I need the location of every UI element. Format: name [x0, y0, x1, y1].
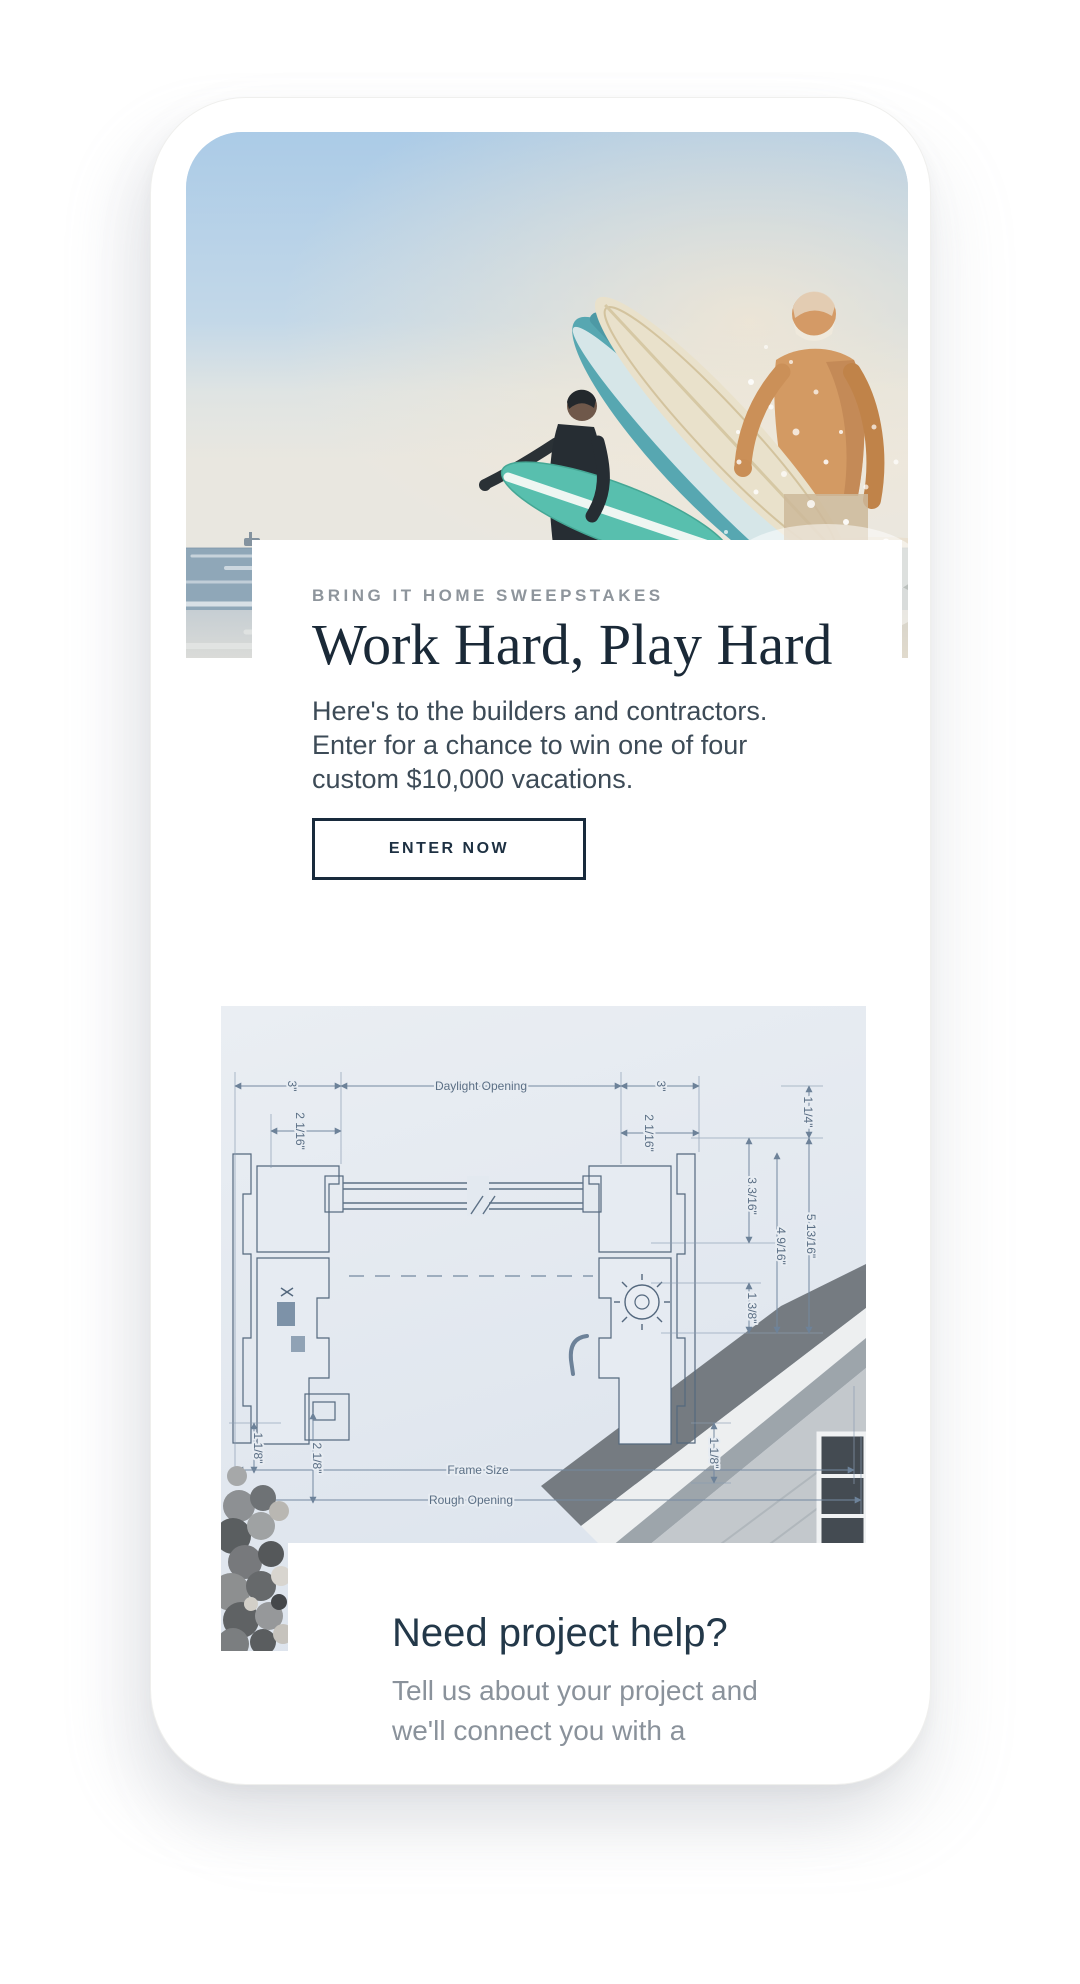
svg-text:2 1/16": 2 1/16"	[293, 1112, 307, 1150]
svg-text:Rough Opening: Rough Opening	[429, 1493, 513, 1507]
svg-text:3": 3"	[285, 1081, 299, 1092]
svg-text:1 3/8": 1 3/8"	[745, 1293, 759, 1324]
help-card: Need project help? Tell us about your pr…	[288, 1543, 908, 1750]
sweepstakes-card: BRING IT HOME SWEEPSTAKES Work Hard, Pla…	[252, 540, 902, 676]
sweepstakes-title: Work Hard, Play Hard	[312, 614, 902, 676]
svg-text:5 13/16": 5 13/16"	[804, 1214, 818, 1258]
sweepstakes-eyebrow: BRING IT HOME SWEEPSTAKES	[312, 586, 902, 606]
svg-text:4 9/16": 4 9/16"	[774, 1227, 788, 1265]
svg-text:Daylight Opening: Daylight Opening	[435, 1079, 527, 1093]
svg-text:2 1/16": 2 1/16"	[642, 1114, 656, 1152]
help-body-line: we'll connect you with a	[392, 1711, 908, 1750]
phone-screen: BRING IT HOME SWEEPSTAKES Work Hard, Pla…	[186, 132, 908, 1750]
sweepstakes-body: Here's to the builders and contractors. …	[312, 694, 832, 796]
svg-text:1 1/4": 1 1/4"	[801, 1097, 815, 1128]
help-body: Tell us about your project and we'll con…	[392, 1671, 908, 1750]
body-line: custom $10,000 vacations.	[312, 762, 832, 796]
svg-text:3 3/16": 3 3/16"	[745, 1177, 759, 1215]
enter-now-button[interactable]: ENTER NOW	[312, 818, 586, 880]
svg-text:1 1/8": 1 1/8"	[251, 1433, 265, 1464]
svg-text:Frame Size: Frame Size	[447, 1463, 509, 1477]
svg-text:2 1/8": 2 1/8"	[310, 1443, 324, 1474]
svg-text:1 1/8": 1 1/8"	[707, 1438, 721, 1469]
hero-image: BRING IT HOME SWEEPSTAKES Work Hard, Pla…	[186, 132, 908, 658]
help-title: Need project help?	[392, 1609, 908, 1657]
body-line: Enter for a chance to win one of four	[312, 728, 832, 762]
phone-mockup-frame: BRING IT HOME SWEEPSTAKES Work Hard, Pla…	[150, 97, 931, 1785]
page: { "hero": { "eyebrow": "BRING IT HOME SW…	[0, 0, 1080, 1984]
svg-text:3": 3"	[654, 1081, 668, 1092]
help-body-line: Tell us about your project and	[392, 1671, 908, 1711]
body-line: Here's to the builders and contractors.	[312, 694, 832, 728]
